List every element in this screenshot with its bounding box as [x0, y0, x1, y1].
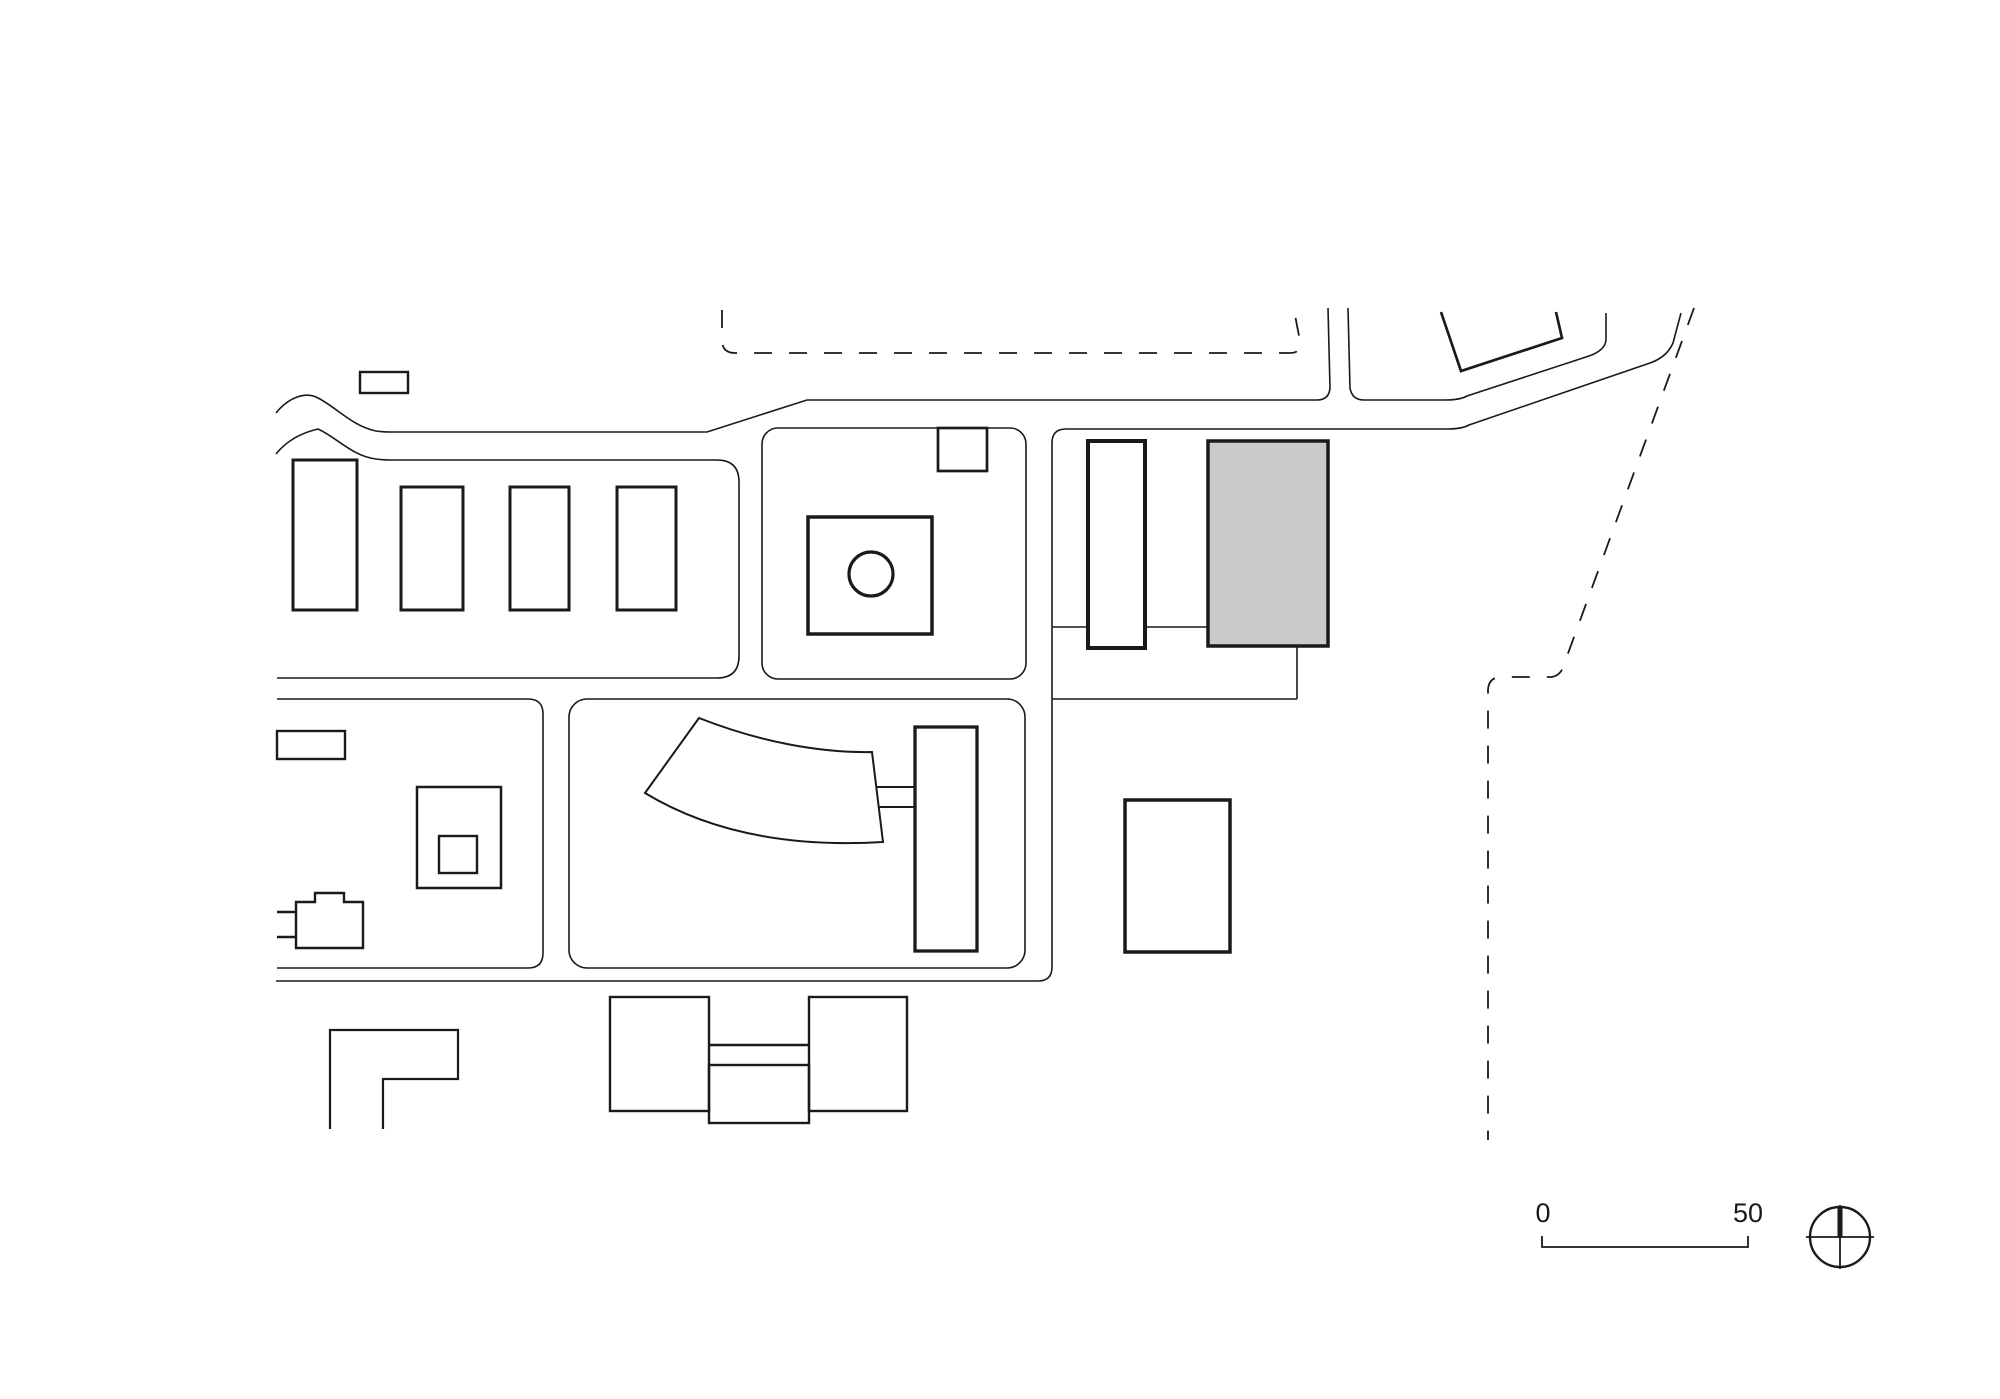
scale-bar-line — [1542, 1236, 1748, 1247]
notched-building-outline — [296, 893, 363, 948]
north-symbol-icon — [1806, 1205, 1874, 1269]
notched-building-stubs — [277, 912, 296, 937]
building-tall-slab — [915, 727, 977, 951]
road-main-upper-edge-east — [1348, 308, 1606, 400]
block-rowhouses-boundary — [276, 429, 739, 678]
nested-square-inner — [439, 836, 477, 873]
fan-hall-connector — [876, 787, 915, 807]
scale-bar: 0 50 — [1535, 1198, 1763, 1247]
site-plan-drawing: 0 50 — [0, 0, 2000, 1399]
building-small-west — [277, 731, 345, 759]
scale-bar-start-label: 0 — [1535, 1198, 1550, 1228]
courtyard-circle — [849, 552, 893, 596]
building-l-shaped-southwest — [330, 1030, 458, 1129]
building-rowhouse-1 — [293, 460, 357, 610]
building-tilted-northeast — [1441, 312, 1562, 371]
block-west-mid-boundary — [277, 699, 543, 968]
twin-building-east — [809, 997, 907, 1111]
road-main-upper-edge — [276, 308, 1330, 432]
building-fan-hall-group — [645, 718, 977, 951]
building-nested-squares — [417, 787, 501, 888]
building-rowhouse-2 — [401, 487, 463, 610]
building-notched-west — [277, 893, 363, 948]
site-plan-page: 0 50 — [0, 0, 2000, 1399]
boundary-dashed-east — [1488, 308, 1694, 1140]
building-fan-hall — [645, 718, 883, 843]
twin-connector-lower-box — [709, 1065, 809, 1123]
twin-building-west — [610, 997, 709, 1111]
building-twin-south-group — [610, 997, 907, 1123]
building-courtyard-with-circle — [808, 517, 932, 634]
building-small-north-outbuilding — [360, 372, 408, 393]
courtyard-building-outline — [808, 517, 932, 634]
building-small-annex-courtyard-block — [938, 428, 987, 471]
scale-bar-end-label: 50 — [1733, 1198, 1763, 1228]
building-freestanding-east — [1125, 800, 1230, 952]
building-rowhouse-3 — [510, 487, 569, 610]
building-slab-white — [1088, 441, 1145, 648]
block-fan-hall-boundary — [569, 699, 1025, 968]
building-rowhouse-4 — [617, 487, 676, 610]
building-highlighted — [1208, 441, 1328, 646]
boundary-dashed-north — [722, 310, 1300, 353]
plan-linework: 0 50 — [276, 308, 1874, 1269]
